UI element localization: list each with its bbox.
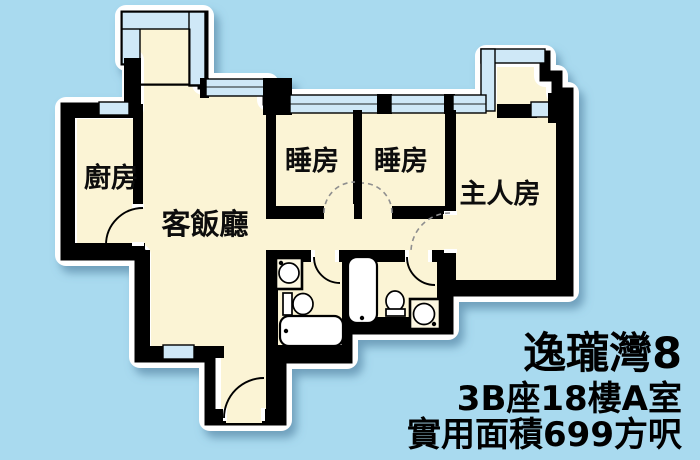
- toilet-cistern: [283, 293, 292, 315]
- wall: [450, 280, 568, 292]
- tap-icon: [432, 322, 436, 326]
- saleable-area: 實用面積699方呎: [407, 415, 683, 455]
- living-window: [206, 79, 266, 96]
- wall: [556, 95, 569, 292]
- tap-icon: [279, 261, 283, 265]
- wall: [548, 93, 569, 123]
- toilet-icon: [386, 291, 404, 311]
- entry-wall: [262, 409, 283, 421]
- bathtub-icon: [280, 316, 343, 346]
- bedroom1-wall: [266, 206, 324, 219]
- door-jamb: [132, 242, 144, 246]
- floorplan-graphic: 廚房 客飯廳 睡房 睡房 主人房 逸瓏灣8 3B座18樓A室 實用面積699方呎: [0, 0, 700, 460]
- bedroom1-wall: [266, 106, 276, 219]
- tap-icon: [284, 329, 288, 333]
- entrance-opening: [226, 407, 262, 423]
- bath2-door-opening: [407, 249, 430, 263]
- door-jamb: [335, 250, 339, 262]
- bedroom2-door-opening: [362, 204, 392, 220]
- wall: [377, 94, 392, 114]
- room-label-living-dining: 客飯廳: [161, 207, 248, 241]
- door-jamb: [444, 249, 457, 253]
- bedroom1-door-opening: [324, 204, 354, 220]
- balcony-window-right: [189, 12, 205, 86]
- bedroom-divider-wall: [353, 110, 362, 219]
- wash-basin-icon: [279, 263, 299, 283]
- bathtub-icon: [348, 257, 377, 323]
- toilet-icon: [293, 294, 313, 315]
- wash-basin-icon: [414, 304, 435, 325]
- master-wall: [445, 110, 456, 214]
- room-label-master-bedroom: 主人房: [460, 179, 541, 210]
- estate-title: 逸瓏灣8: [523, 329, 682, 379]
- door-jamb: [428, 250, 432, 262]
- living-wall: [138, 250, 150, 358]
- room-label-bedroom-1: 睡房: [285, 146, 339, 177]
- room-label-kitchen: 廚房: [84, 162, 138, 194]
- room-label-bedroom-2: 睡房: [374, 146, 428, 177]
- bath1-door-opening: [314, 249, 337, 263]
- kitchen-door-opening: [131, 208, 145, 242]
- kitchen-window: [99, 102, 129, 115]
- tap-icon: [360, 316, 364, 320]
- door-jamb: [261, 408, 265, 421]
- living-low-window: [163, 345, 194, 359]
- master-door-opening: [443, 214, 458, 250]
- block-floor-unit: 3B座18樓A室: [457, 379, 682, 419]
- toilet-base: [386, 309, 405, 316]
- wall: [66, 108, 75, 255]
- floorplan-canvas: 廚房 客飯廳 睡房 睡房 主人房 逸瓏灣8 3B座18樓A室 實用面積699方呎: [0, 0, 700, 460]
